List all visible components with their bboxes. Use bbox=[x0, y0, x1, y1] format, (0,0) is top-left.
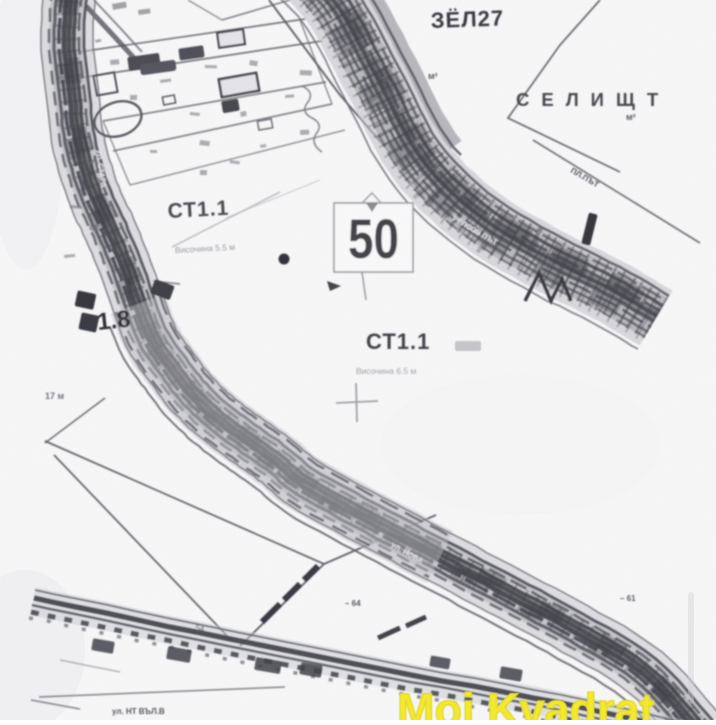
svg-text:Moj Kvadrat: Moj Kvadrat bbox=[397, 684, 655, 720]
